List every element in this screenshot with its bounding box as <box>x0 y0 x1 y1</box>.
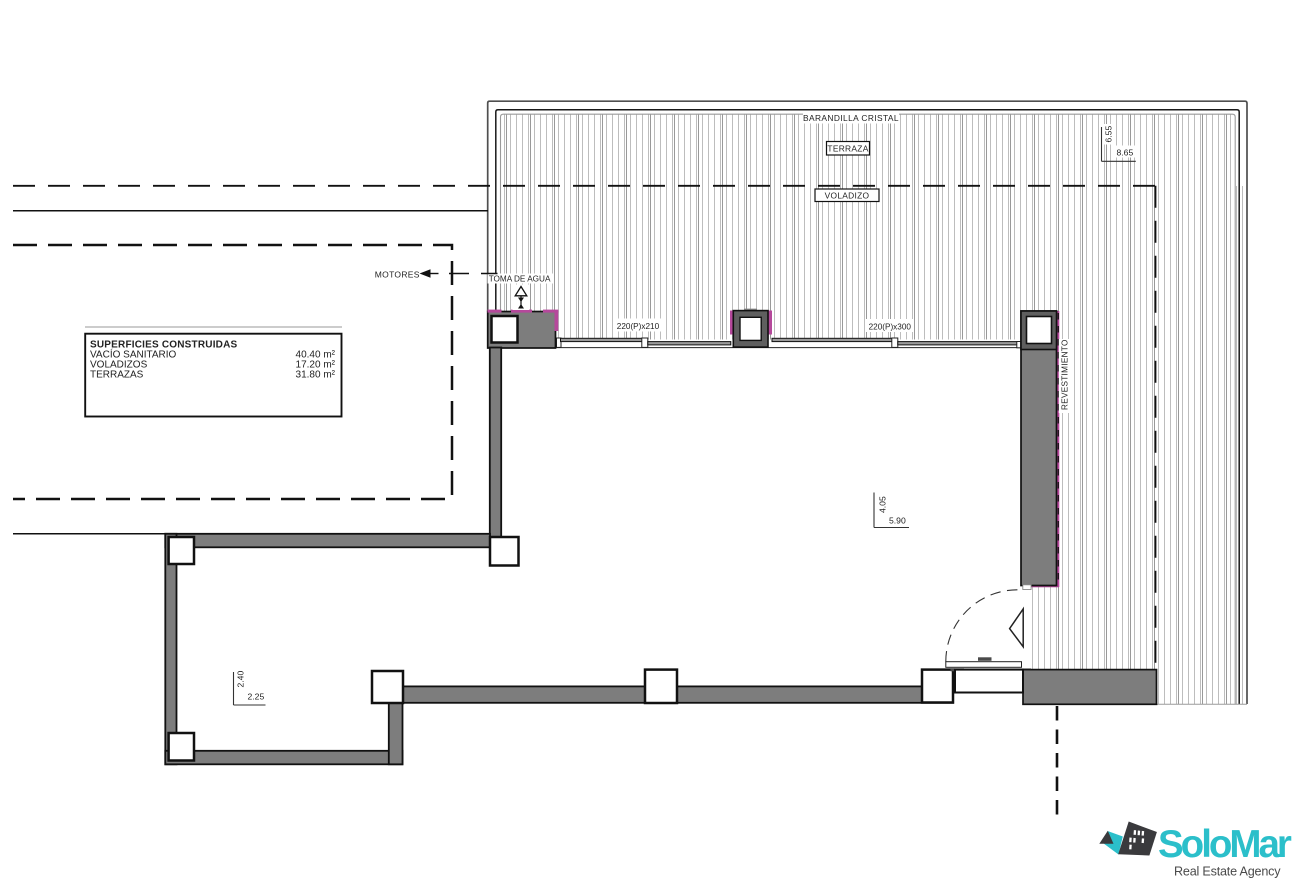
svg-text:5.90: 5.90 <box>889 516 906 526</box>
svg-text:2.25: 2.25 <box>248 692 265 702</box>
svg-text:4.05: 4.05 <box>878 496 888 513</box>
svg-text:BARANDILLA CRISTAL: BARANDILLA CRISTAL <box>803 113 899 123</box>
svg-text:Real Estate Agency: Real Estate Agency <box>1174 865 1281 879</box>
svg-text:31.80 m²: 31.80 m² <box>296 370 336 381</box>
svg-text:2.40: 2.40 <box>236 671 246 688</box>
svg-text:220(P)x210: 220(P)x210 <box>617 322 660 331</box>
svg-text:VACÍO SANITARIO: VACÍO SANITARIO <box>90 347 177 360</box>
svg-text:SoloMar: SoloMar <box>1158 823 1292 866</box>
svg-text:TOMA DE AGUA: TOMA DE AGUA <box>489 275 551 284</box>
svg-text:REVESTIMIENTO: REVESTIMIENTO <box>1061 339 1070 410</box>
svg-text:TERRAZAS: TERRAZAS <box>90 370 144 381</box>
svg-text:VOLADIZO: VOLADIZO <box>825 191 870 201</box>
svg-text:220(P)x300: 220(P)x300 <box>869 322 912 331</box>
svg-text:8.65: 8.65 <box>1117 147 1134 157</box>
svg-text:MOTORES: MOTORES <box>375 269 420 279</box>
svg-text:6.55: 6.55 <box>1104 126 1114 143</box>
svg-text:TERRAZA: TERRAZA <box>827 144 868 154</box>
